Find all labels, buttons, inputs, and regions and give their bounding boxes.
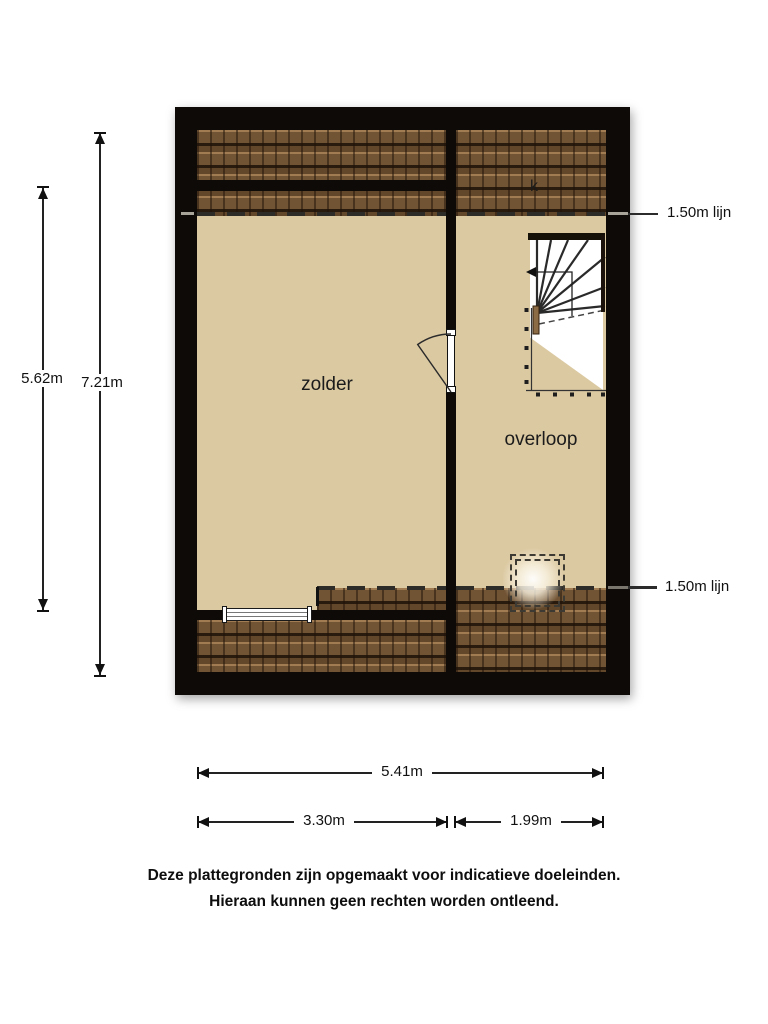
window-jamb-right (307, 606, 312, 623)
height-line-bottom-wall-tick (608, 586, 628, 589)
floorplan-interior: zolder overloop k (197, 130, 606, 672)
skylight-inner-frame (515, 559, 560, 607)
dimension-line-vertical-inner (42, 188, 44, 610)
disclaimer-line-2: Hieraan kunnen geen rechten worden ontle… (0, 890, 768, 913)
dimension-line-vertical-outer (99, 133, 101, 675)
height-line-top-wall-tick-right (608, 212, 628, 215)
window-jamb-left (222, 606, 227, 623)
window-frame-line (227, 616, 307, 617)
door-swing-arc (418, 334, 451, 392)
divider-wall-lower (446, 392, 456, 672)
dimension-arrow-up-icon (38, 188, 48, 199)
height-line-top-label: 1.50m lijn (667, 204, 731, 221)
dimension-arrow-right-icon (592, 768, 603, 778)
stair-top-wall (528, 233, 605, 240)
height-line-top-connector (628, 213, 658, 215)
dimension-label-1-99: 1.99m (501, 812, 561, 829)
height-line-bottom-label: 1.50m lijn (665, 578, 729, 595)
dimension-label-3-30: 3.30m (294, 812, 354, 829)
floorplan-outline: zolder overloop k (175, 107, 630, 695)
closet-label-k: k (519, 178, 549, 196)
roof-beam (197, 180, 446, 191)
divider-wall-upper (446, 130, 456, 330)
window (225, 608, 309, 621)
dimension-label-7-21: 7.21m (74, 374, 130, 391)
room-label-overloop: overloop (491, 429, 591, 451)
dimension-label-5-62: 5.62m (14, 370, 70, 387)
dimension-cap (37, 610, 49, 612)
dimension-arrow-down-icon (38, 599, 48, 610)
disclaimer: Deze plattegronden zijn opgemaakt voor i… (0, 864, 768, 916)
height-line-top-dashed (197, 212, 606, 216)
dimension-arrow-left-icon (198, 768, 209, 778)
height-line-bottom-dashed-left (317, 586, 446, 590)
dimension-arrow-left-icon (198, 817, 209, 827)
room-label-zolder: zolder (277, 374, 377, 396)
door-leaf (447, 335, 455, 387)
roof-slope-bottom-left-strip (317, 588, 446, 612)
floorplan-page: zolder overloop k 1.50m lijn 1.50m lijn … (0, 0, 768, 1024)
door-jamb-bottom (446, 386, 456, 393)
window-frame-line (227, 612, 307, 613)
roof-slope-top-right (456, 130, 606, 216)
dimension-label-5-41: 5.41m (372, 763, 432, 780)
roof-slope-top-left (197, 130, 446, 216)
dimension-arrow-up-icon (95, 133, 105, 144)
height-line-top-wall-tick-left (181, 212, 194, 215)
height-line-bottom-connector (628, 586, 657, 589)
stair-balusters-bottom (536, 393, 605, 397)
disclaimer-line-1: Deze plattegronden zijn opgemaakt voor i… (0, 864, 768, 887)
stair-balusters-left (525, 308, 529, 384)
dimension-arrow-right-icon (592, 817, 603, 827)
roof-slope-bottom-left (197, 620, 446, 672)
dimension-arrow-down-icon (95, 664, 105, 675)
dimension-cap (94, 675, 106, 677)
dimension-arrow-right-icon (436, 817, 447, 827)
dimension-arrow-left-icon (455, 817, 466, 827)
